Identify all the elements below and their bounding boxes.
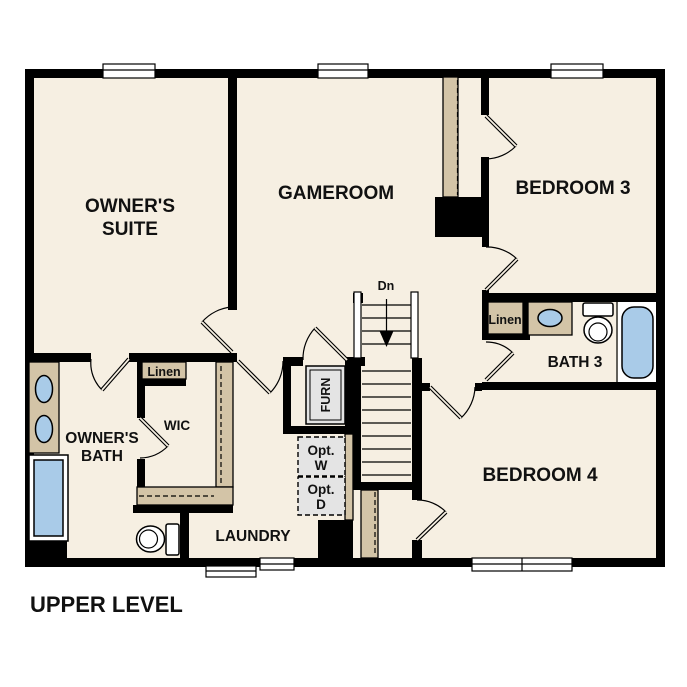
opt-dryer-label-line1: Opt. [308,482,335,497]
window [551,64,603,78]
stair-rail-left [354,292,361,358]
bedroom3-closet-shelf [443,77,458,197]
laundry-label: LAUNDRY [215,528,291,545]
toilet [137,524,180,555]
sink [538,310,562,327]
floor-plan-drawing: OWNER'S SUITE GAMEROOM BEDROOM 3 BEDROOM… [0,0,687,687]
wic-label: WIC [164,418,190,433]
window [206,566,256,577]
opt-washer-label-line2: W [315,458,328,473]
window [103,64,155,78]
bedroom3-label: BEDROOM 3 [515,178,630,199]
wic-linen-label: Linen [147,365,180,379]
shower [29,455,68,541]
bathtub [617,302,656,382]
stairs-down-label: Dn [378,279,395,293]
furnace-label: FURN [319,378,333,413]
sink [36,376,53,403]
stair-rail-right [411,292,418,358]
owners-bath-label-line2: BATH [81,448,123,465]
owners-suite-label-line2: SUITE [102,219,158,240]
wic-shelf-right [216,362,233,487]
window-double [472,558,572,571]
floor-plan-page: OWNER'S SUITE GAMEROOM BEDROOM 3 BEDROOM… [0,0,687,687]
bath3-label: BATH 3 [548,354,603,371]
owners-suite-label-line1: OWNER'S [85,196,175,217]
opt-dryer-label-line2: D [316,497,326,512]
window [260,558,294,570]
bedroom4-label: BEDROOM 4 [482,465,598,486]
hall-linen-label: Linen [488,313,521,327]
plan-title: UPPER LEVEL [30,592,183,617]
sink [36,416,53,443]
toilet [583,303,613,343]
laundry-shelf [345,434,353,520]
gameroom-label: GAMEROOM [278,183,394,204]
opt-washer-label-line1: Opt. [308,443,335,458]
owners-bath-label-line1: OWNER'S [65,430,138,447]
window [318,64,368,78]
